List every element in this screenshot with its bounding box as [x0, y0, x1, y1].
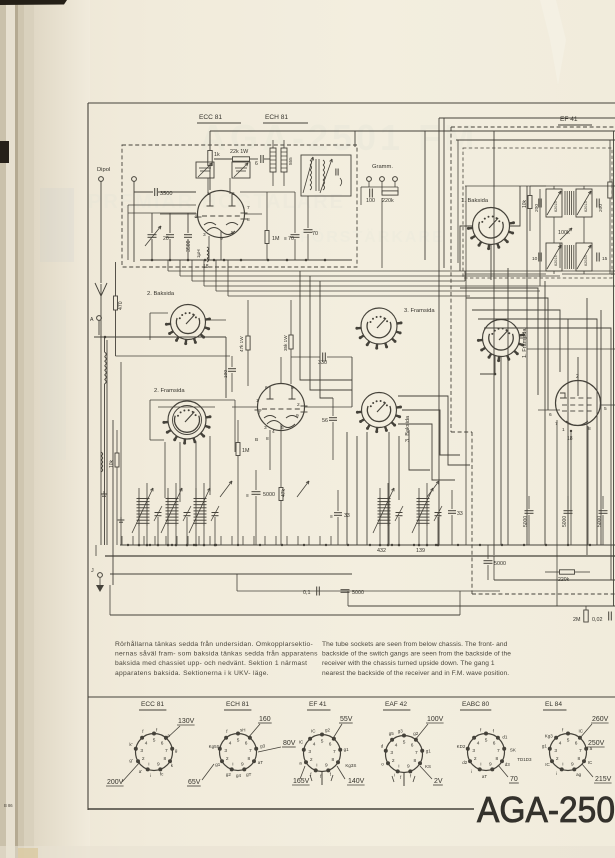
svg-text:i: i	[471, 769, 472, 774]
svg-text:B: B	[255, 437, 258, 443]
svg-text:ECH 81: ECH 81	[265, 114, 288, 121]
svg-text:7: 7	[258, 410, 261, 416]
svg-text:7: 7	[555, 421, 558, 427]
svg-text:33: 33	[457, 511, 463, 517]
svg-text:65V: 65V	[188, 779, 201, 786]
svg-text:220k: 220k	[382, 198, 394, 204]
svg-text:100: 100	[223, 370, 229, 378]
svg-text:330: 330	[318, 360, 327, 366]
svg-text:5000: 5000	[597, 516, 603, 527]
svg-text:5000: 5000	[263, 492, 275, 498]
svg-text:4: 4	[313, 741, 316, 747]
svg-text:EABC 80: EABC 80	[462, 701, 489, 708]
svg-text:d3: d3	[505, 762, 511, 767]
svg-text:432: 432	[377, 548, 386, 554]
svg-text:9: 9	[489, 762, 492, 768]
svg-text:139: 139	[416, 548, 425, 554]
svg-text:22k 1W: 22k 1W	[230, 149, 249, 155]
svg-text:2M: 2M	[573, 617, 581, 623]
svg-text:i: i	[398, 764, 399, 770]
svg-text:3: 3	[390, 750, 393, 756]
svg-text:ag: ag	[576, 772, 582, 777]
svg-text:2. Framsida: 2. Framsida	[154, 388, 185, 394]
svg-text:8: 8	[164, 756, 167, 762]
svg-text:g2: g2	[226, 772, 232, 777]
svg-text:SK: SK	[510, 748, 516, 753]
svg-text:1: 1	[207, 191, 210, 197]
svg-text:56: 56	[322, 418, 328, 424]
svg-text:5: 5	[567, 738, 570, 744]
svg-text:1: 1	[562, 427, 565, 433]
svg-text:i: i	[232, 762, 233, 768]
svg-text:sH: sH	[240, 727, 246, 732]
svg-text:2: 2	[226, 756, 229, 762]
svg-text:8: 8	[414, 758, 417, 764]
svg-text:5000: 5000	[562, 516, 568, 527]
svg-text:9: 9	[220, 236, 223, 242]
svg-text:35k 1W: 35k 1W	[283, 335, 288, 351]
svg-text:The tube sockets are seen from: The tube sockets are seen from below cha…	[322, 641, 508, 648]
svg-text:3: 3	[472, 748, 475, 754]
svg-text:g1: g1	[426, 749, 432, 754]
svg-text:1. Baksida: 1. Baksida	[461, 198, 489, 204]
svg-text:1k: 1k	[214, 152, 220, 158]
svg-text:62015: 62015	[554, 201, 558, 212]
svg-text:d1: d1	[502, 735, 508, 740]
svg-text:200V: 200V	[107, 779, 124, 786]
svg-text:3: 3	[140, 748, 143, 754]
svg-text:2: 2	[474, 756, 477, 762]
svg-text:g1: g1	[542, 744, 548, 749]
svg-text:FÖRSTÄRKARE: FÖRSTÄRKARE	[300, 227, 445, 246]
svg-text:55V: 55V	[340, 716, 353, 723]
svg-text:baksida med chassiet upp- och: baksida med chassiet upp- och nedvänt. S…	[115, 660, 307, 667]
svg-text:8: 8	[247, 217, 250, 223]
svg-text:7: 7	[497, 748, 500, 754]
svg-text:200: 200	[534, 204, 540, 212]
svg-text:6: 6	[411, 742, 414, 748]
svg-text:3500: 3500	[186, 240, 192, 252]
svg-text:Kg3: Kg3	[545, 733, 554, 738]
svg-text:130V: 130V	[178, 718, 195, 725]
svg-text:200: 200	[598, 204, 604, 212]
svg-text:IC: IC	[588, 760, 593, 765]
svg-text:g5: g5	[389, 731, 395, 736]
svg-text:1M: 1M	[272, 236, 280, 242]
svg-text:g2: g2	[413, 731, 419, 736]
svg-text:6: 6	[232, 191, 235, 197]
svg-text:≡: ≡	[246, 493, 249, 499]
svg-text:5: 5	[485, 738, 488, 744]
svg-text:6: 6	[493, 740, 496, 746]
svg-text:≡: ≡	[330, 514, 333, 520]
svg-text:5000: 5000	[494, 561, 506, 567]
svg-text:9: 9	[157, 762, 160, 768]
svg-text:EF 41: EF 41	[309, 701, 327, 708]
svg-text:8: 8	[588, 426, 591, 432]
svg-text:i: i	[150, 773, 151, 778]
svg-text:aT: aT	[482, 774, 488, 779]
svg-text:backside of the switch gangs a: backside of the switch gangs are seen fr…	[322, 651, 511, 658]
svg-text:8: 8	[291, 385, 294, 391]
svg-text:4: 4	[395, 742, 398, 748]
svg-text:≡: ≡	[284, 236, 287, 242]
svg-text:nernas såväl fram- som baksida: nernas såväl fram- som baksida tänkas se…	[115, 650, 318, 658]
svg-text:6: 6	[575, 740, 578, 746]
svg-text:i: i	[148, 762, 149, 768]
svg-text:KS: KS	[425, 764, 431, 769]
svg-text:2. Baksida: 2. Baksida	[147, 291, 175, 297]
svg-text:4: 4	[145, 740, 148, 746]
svg-text:g3: g3	[260, 744, 266, 749]
svg-text:ECC 81: ECC 81	[141, 701, 164, 708]
svg-text:IC: IC	[311, 729, 316, 734]
svg-text:3: 3	[554, 748, 557, 754]
svg-text:gT: gT	[246, 772, 252, 777]
svg-text:ECH 81: ECH 81	[226, 701, 249, 708]
svg-text:100: 100	[366, 198, 375, 204]
svg-text:215V: 215V	[595, 776, 612, 783]
svg-text:IC: IC	[579, 728, 584, 733]
svg-text:3: 3	[224, 748, 227, 754]
svg-text:5: 5	[153, 738, 156, 744]
svg-text:6: 6	[329, 741, 332, 747]
svg-text:aT: aT	[258, 760, 264, 765]
svg-text:3. Baksida: 3. Baksida	[405, 415, 411, 442]
svg-text:4: 4	[559, 740, 562, 746]
svg-text:8: 8	[578, 756, 581, 762]
svg-text:250V: 250V	[588, 740, 605, 747]
svg-text:Kg3S: Kg3S	[345, 763, 356, 768]
svg-text:2: 2	[310, 757, 313, 763]
svg-text:5: 5	[231, 230, 234, 236]
svg-text:260V: 260V	[592, 716, 609, 723]
svg-text:6: 6	[549, 412, 552, 418]
svg-text:8: 8	[248, 756, 251, 762]
svg-text:18: 18	[567, 436, 573, 442]
svg-text:6: 6	[161, 740, 164, 746]
svg-text:2: 2	[392, 758, 395, 764]
svg-text:2: 2	[142, 756, 145, 762]
svg-text:g2: g2	[325, 728, 331, 733]
svg-text:5: 5	[321, 739, 324, 745]
svg-text:7: 7	[333, 749, 336, 755]
svg-text:A: A	[90, 317, 94, 323]
svg-text:6: 6	[245, 740, 248, 746]
svg-text:160: 160	[259, 716, 271, 723]
svg-text:g4: g4	[236, 773, 242, 778]
svg-text:5000: 5000	[523, 516, 529, 527]
svg-text:0,1: 0,1	[303, 590, 311, 596]
svg-text:5: 5	[237, 738, 240, 744]
svg-text:3. Framsida: 3. Framsida	[404, 308, 435, 314]
svg-text:70: 70	[288, 236, 294, 242]
svg-text:70: 70	[510, 776, 518, 783]
svg-text:EAF 42: EAF 42	[385, 701, 407, 708]
svg-text:10: 10	[532, 256, 538, 262]
svg-text:8: 8	[496, 756, 499, 762]
svg-text:Gramm.: Gramm.	[372, 164, 393, 170]
svg-text:9: 9	[325, 763, 328, 769]
svg-text:i: i	[480, 762, 481, 768]
svg-text:J: J	[91, 568, 94, 574]
svg-text:62014: 62014	[554, 255, 558, 266]
svg-text:165V: 165V	[293, 778, 310, 785]
svg-text:Dipol: Dipol	[97, 167, 110, 173]
svg-text:7: 7	[249, 748, 252, 754]
svg-text:i: i	[394, 772, 395, 777]
svg-text:47k: 47k	[281, 488, 287, 497]
svg-text:9: 9	[571, 762, 574, 768]
svg-text:receiver with the chassis turn: receiver with the chassis turned upside …	[322, 660, 495, 667]
svg-text:2V: 2V	[434, 778, 443, 785]
svg-text:4: 4	[272, 429, 275, 435]
svg-text:3: 3	[203, 232, 206, 238]
svg-text:9: 9	[241, 762, 244, 768]
svg-text:62013: 62013	[584, 201, 588, 212]
svg-text:20: 20	[163, 236, 169, 242]
svg-text:nearest the backside of the re: nearest the backside of the receiver and…	[322, 670, 509, 677]
svg-text:8: 8	[266, 436, 269, 442]
svg-text:B 86: B 86	[4, 803, 13, 808]
svg-text:PREMIÄR HÖGTALARE: PREMIÄR HÖGTALARE	[88, 190, 345, 213]
svg-text:3: 3	[308, 749, 311, 755]
svg-text:1M: 1M	[242, 448, 250, 454]
svg-text:2: 2	[195, 214, 198, 220]
svg-text:IC: IC	[299, 740, 304, 745]
svg-text:k': k'	[129, 742, 132, 747]
svg-text:0,02: 0,02	[592, 617, 603, 623]
svg-text:62033: 62033	[584, 255, 588, 266]
svg-text:7: 7	[165, 748, 168, 754]
svg-text:KD2: KD2	[457, 744, 466, 749]
svg-text:1: 1	[256, 398, 259, 404]
svg-text:6: 6	[255, 161, 258, 167]
svg-text:g3: g3	[398, 728, 404, 733]
svg-text:AGA-250: AGA-250	[477, 789, 615, 830]
svg-text:4: 4	[229, 740, 232, 746]
svg-text:9: 9	[407, 764, 410, 770]
svg-text:i: i	[556, 771, 557, 776]
svg-text:470: 470	[118, 301, 124, 310]
svg-text:9: 9	[296, 413, 299, 419]
svg-text:apparatens baksida. Sektioner: apparatens baksida. Sektionerna i k UKV-…	[115, 670, 269, 677]
svg-text:Rörhållarna tänkas sedda från: Rörhållarna tänkas sedda från undersidan…	[115, 640, 313, 648]
svg-text:15: 15	[602, 256, 608, 262]
svg-text:EL 84: EL 84	[545, 701, 562, 708]
svg-text:6: 6	[265, 385, 268, 391]
svg-text:5: 5	[281, 425, 284, 431]
svg-text:a': a'	[139, 769, 143, 774]
svg-text:2: 2	[297, 402, 300, 408]
svg-text:3: 3	[264, 425, 267, 431]
svg-text:70: 70	[312, 231, 318, 237]
svg-text:Kg5S: Kg5S	[209, 744, 220, 749]
svg-text:5: 5	[604, 406, 607, 412]
svg-text:8: 8	[332, 757, 335, 763]
svg-text:5: 5	[403, 740, 406, 746]
svg-text:ECC 81: ECC 81	[199, 114, 222, 121]
svg-text:47k 1W: 47k 1W	[239, 336, 244, 352]
svg-text:2: 2	[556, 756, 559, 762]
svg-text:d2: d2	[462, 760, 468, 765]
svg-text:IC: IC	[545, 762, 550, 767]
svg-text:g': g'	[129, 758, 133, 763]
svg-text:2: 2	[576, 374, 579, 380]
svg-text:4: 4	[477, 740, 480, 746]
svg-text:100k: 100k	[558, 230, 570, 236]
svg-text:10k: 10k	[109, 459, 115, 468]
svg-text:g1: g1	[215, 762, 221, 767]
svg-text:7: 7	[415, 750, 418, 756]
svg-text:5000: 5000	[352, 590, 364, 596]
svg-text:80V: 80V	[283, 740, 296, 747]
svg-text:g1: g1	[344, 747, 350, 752]
svg-text:555: 555	[288, 157, 293, 165]
svg-text:140V: 140V	[348, 778, 365, 785]
svg-text:EF 41: EF 41	[560, 116, 578, 123]
svg-text:i: i	[316, 763, 317, 769]
svg-text:TD1D3: TD1D3	[517, 757, 532, 762]
svg-text:7: 7	[579, 748, 582, 754]
svg-text:7: 7	[247, 205, 250, 211]
svg-text:i: i	[562, 762, 563, 768]
svg-text:100V: 100V	[427, 716, 444, 723]
svg-text:1µH: 1µH	[196, 249, 201, 258]
